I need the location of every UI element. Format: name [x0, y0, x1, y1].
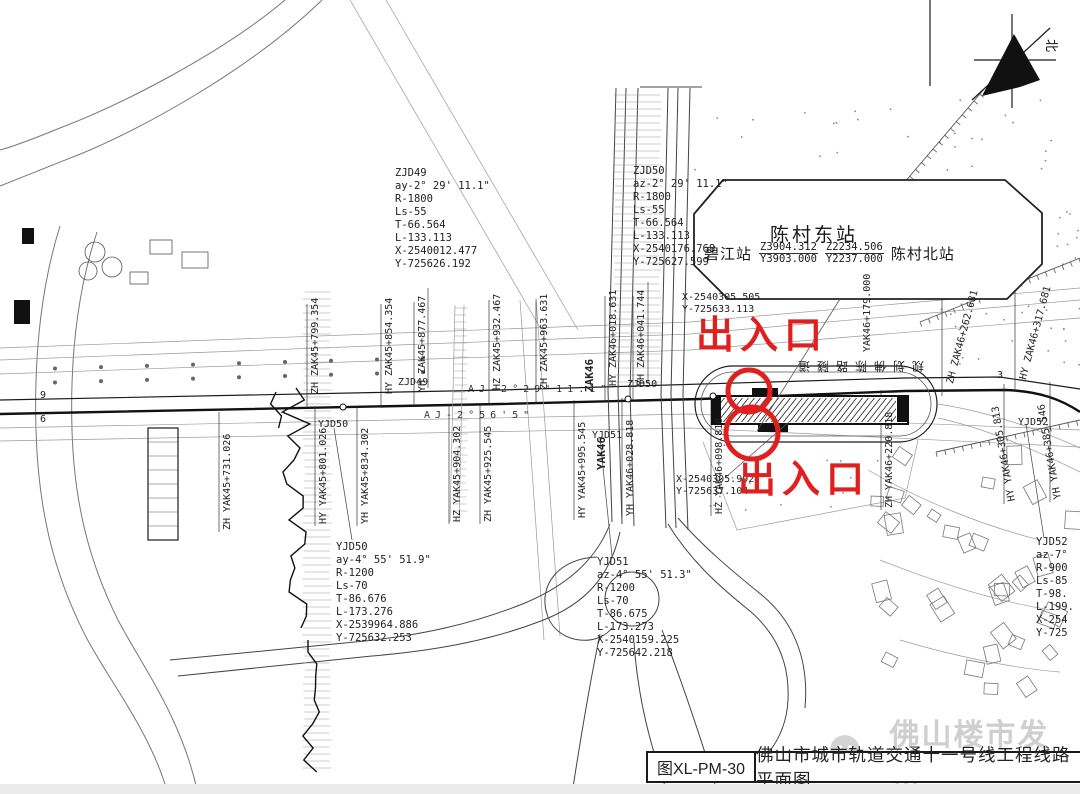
curve-point-label: ZJD50 — [627, 379, 657, 390]
misc-label: 9 — [40, 390, 46, 401]
curve-data-block-zjd49: ZJD49 ay-2° 29' 11.1" R-1800 Ls-55 T-66.… — [395, 167, 490, 271]
chainage-label-bottom: YH YAK45+834.302 — [360, 428, 371, 524]
chainage-label-bottom: ZH YAK46+220.818 — [884, 412, 895, 508]
chainage-label-top: HY ZAK45+854.354 — [384, 298, 395, 394]
frac2-denominator: Y2237.000 — [825, 254, 884, 265]
chainage-label-bottom: HY YAK45+995.545 — [577, 422, 588, 518]
station-distance-frac1: Z3904.312 Y3903.000 — [759, 242, 818, 265]
chainage-label-bottom: ZH YAK45+925.545 — [483, 426, 494, 522]
drawing-linework — [0, 0, 1080, 794]
station-center-chainage: YAK46+179.000 — [862, 274, 873, 352]
entrance-structure — [752, 388, 778, 396]
curve-point-label: YJD50 — [318, 419, 348, 430]
chainage-label-bottom: HZ YAK46+098.818 — [714, 418, 725, 514]
chainage-label-bottom: ZH YAK45+731.026 — [222, 434, 233, 530]
misc-label: 6 — [40, 414, 46, 425]
station-rotated-annotation: 规划佛陈路隧道 — [748, 358, 924, 375]
intersection-angle-label: AJ-2°29'11.1" — [468, 384, 611, 395]
station-name-row: 碧江站 Z3904.312 Y3903.000 Z2234.506 Y2237.… — [704, 242, 955, 265]
north-arrow-icon — [972, 14, 1056, 108]
curve-data-block-yjd50: YJD50 ay-4° 55' 51.9" R-1200 Ls-70 T-86.… — [336, 541, 431, 645]
chainage-label-top: HZ ZAK45+932.467 — [492, 294, 503, 390]
curve-point-label: YJD51 — [592, 430, 622, 441]
curve-data-block-yjd51: YJD51 az-4° 55' 51.3" R-1200 Ls-70 T-86.… — [597, 556, 692, 660]
entrance-structure — [758, 424, 788, 432]
tree-symbol — [85, 242, 105, 262]
title-block: 图XL-PM-30 佛山市城市轨道交通十一号线工程线路平面图 — [646, 751, 1080, 783]
misc-label: 3 — [997, 370, 1003, 381]
chainage-label-bottom: HZ YAK45+904.302 — [452, 426, 463, 522]
station-distance-frac2: Z2234.506 Y2237.000 — [825, 242, 884, 265]
intersection-angle-label: AJ-2°56'5" — [424, 410, 534, 421]
curve-point-label: YJD52 — [1018, 417, 1048, 428]
chainage-label-top: HY ZAK46+018.631 — [608, 290, 619, 386]
chainage-label-bottom: YH YAK46+028.818 — [625, 420, 636, 516]
axis-mark-yak46: YAK46 — [596, 437, 607, 470]
chainage-label-top: ZH ZAK45+799.354 — [310, 298, 321, 394]
chainage-label-top: ZH ZAK45+963.631 — [539, 294, 550, 390]
frac1-denominator: Y3903.000 — [759, 254, 818, 265]
chainage-label-top: YH ZAK46+041.744 — [636, 290, 647, 386]
station-name-right: 陈村北站 — [891, 243, 955, 264]
chainage-label-bottom: HY YAK45+801.026 — [318, 428, 329, 524]
curve-data-block-yjd52: YJD52 az-7° R-900 Ls-85 T-98. L-199. X-2… — [1036, 536, 1074, 640]
north-label: 北 — [1043, 39, 1062, 52]
entrance-label-top: 出入口 — [696, 304, 828, 359]
curve-point-label: ZJD49 — [398, 377, 428, 388]
drawing-number: 图XL-PM-30 — [646, 751, 756, 783]
entrance-label-bottom: 出入口 — [738, 448, 870, 503]
bottom-margin-bar — [0, 784, 1080, 794]
tree-symbol — [102, 257, 122, 277]
drawing-title: 佛山市城市轨道交通十一号线工程线路平面图 — [756, 751, 1080, 783]
engineering-plan-canvas: ZH ZAK45+799.354HY ZAK45+854.354YH ZAK45… — [0, 0, 1080, 794]
station-name-left: 碧江站 — [704, 243, 752, 264]
